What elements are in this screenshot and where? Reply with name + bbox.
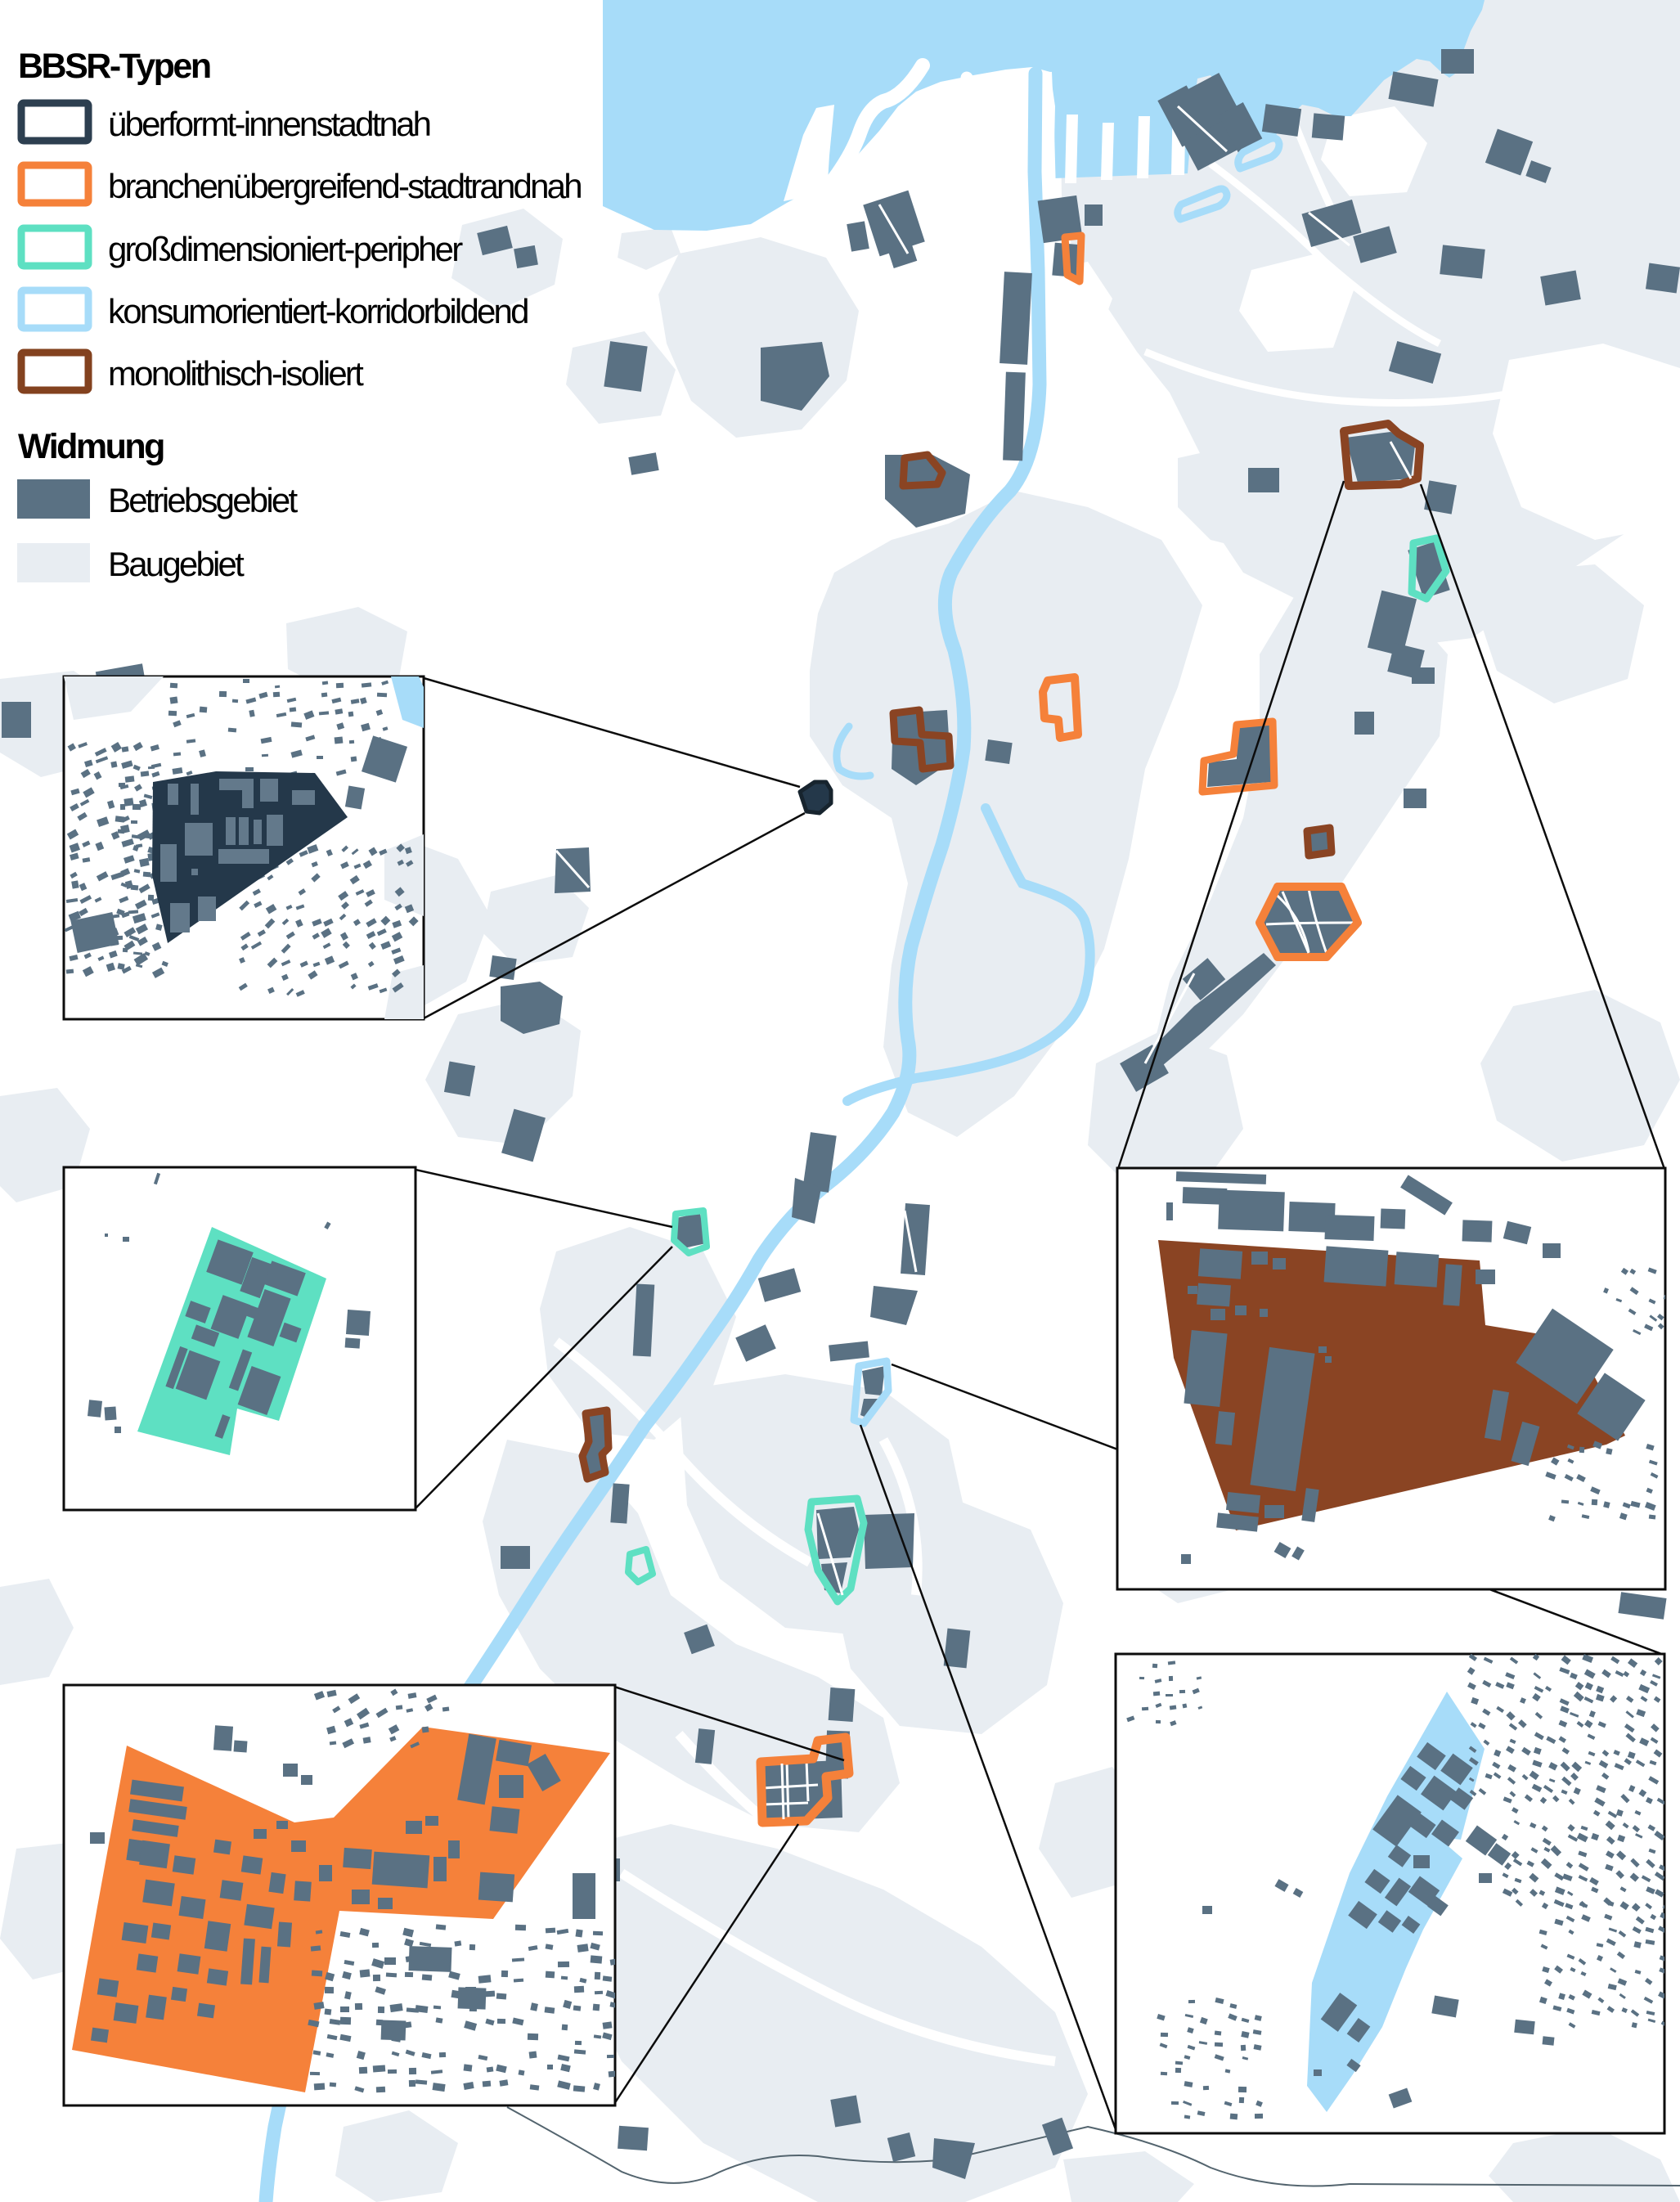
svg-text:monolithisch-isoliert: monolithisch-isoliert	[108, 354, 364, 393]
svg-text:konsumorientiert-korridorbilde: konsumorientiert-korridorbildend	[108, 292, 528, 330]
svg-text:überformt-innenstadtnah: überformt-innenstadtnah	[108, 105, 430, 143]
svg-text:Widmung: Widmung	[18, 427, 164, 466]
svg-text:Baugebiet: Baugebiet	[108, 545, 245, 583]
svg-text:Betriebsgebiet: Betriebsgebiet	[108, 481, 298, 519]
svg-text:großdimensioniert-peripher: großdimensioniert-peripher	[108, 230, 463, 268]
svg-text:BBSR-Typen: BBSR-Typen	[18, 47, 210, 86]
svg-text:branchenübergreifend-stadtrand: branchenübergreifend-stadtrandnah	[108, 167, 581, 205]
